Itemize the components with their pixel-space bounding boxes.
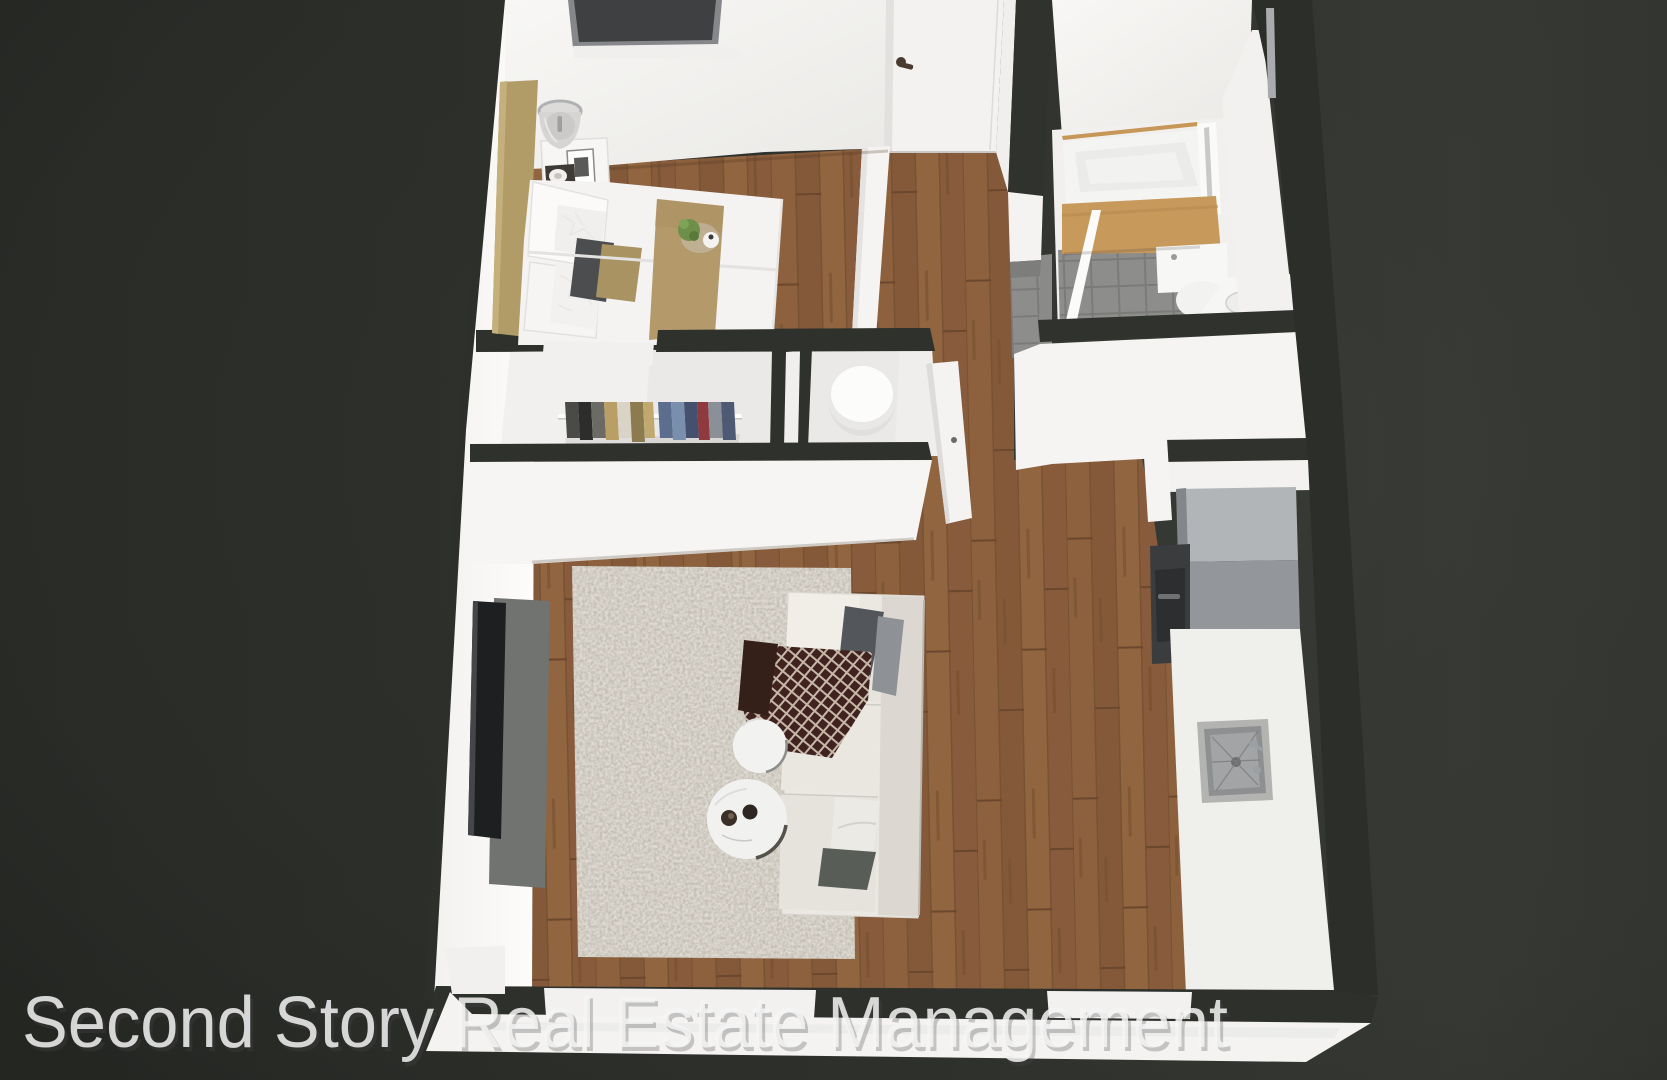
svg-text:Second Story Real Estate Manag: Second Story Real Estate Management — [22, 983, 1228, 1063]
